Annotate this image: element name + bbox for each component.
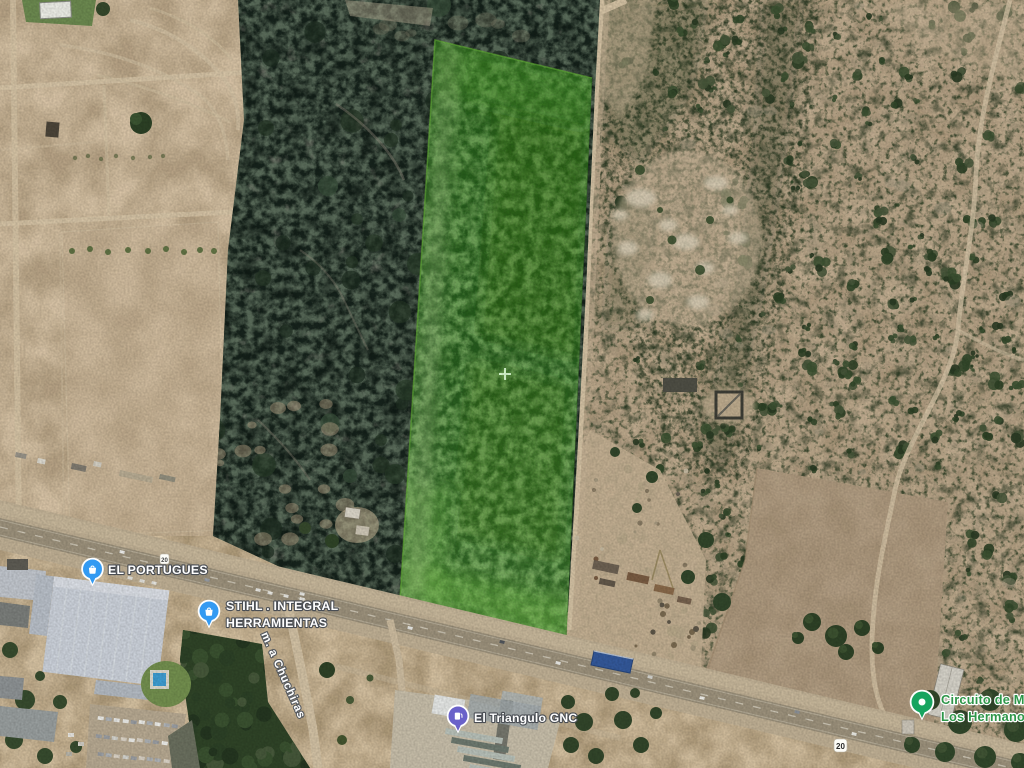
svg-text:STIHL . INTEGRAL: STIHL . INTEGRAL xyxy=(226,599,339,613)
svg-text:HERRAMIENTAS: HERRAMIENTAS xyxy=(226,616,327,630)
svg-text:Circuito de Mo: Circuito de Mo xyxy=(941,692,1024,707)
svg-text:El Triangulo GNC: El Triangulo GNC xyxy=(474,711,577,725)
svg-text:20: 20 xyxy=(836,742,845,751)
svg-text:Los Hermanos: Los Hermanos xyxy=(941,709,1024,724)
svg-text:EL PORTUGUES: EL PORTUGUES xyxy=(108,563,208,577)
